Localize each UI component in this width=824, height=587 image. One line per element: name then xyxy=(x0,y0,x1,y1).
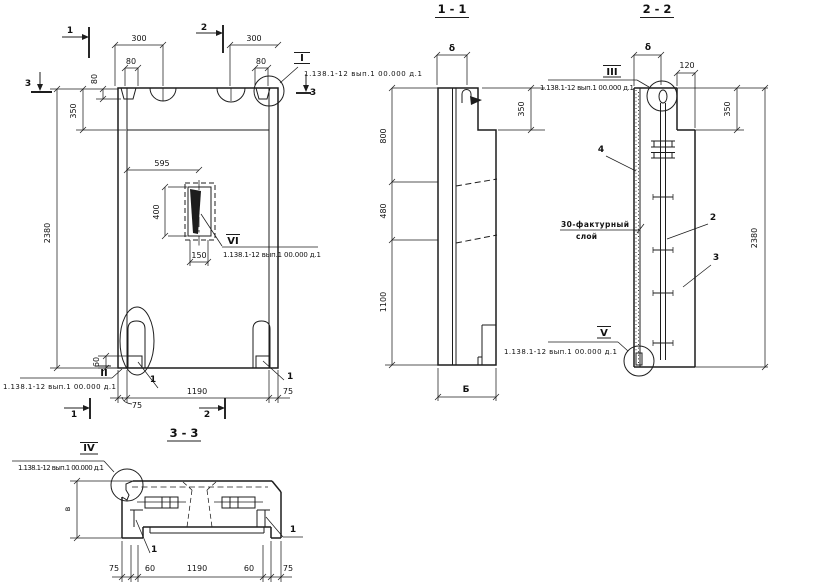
texture-note-line2: слой xyxy=(576,232,597,241)
dim-595: 595 xyxy=(154,159,169,168)
dim-60-corner: 60 xyxy=(92,357,101,367)
cut-mark-3-right: 3 xyxy=(310,88,316,98)
section-2-2: 2 - 2 xyxy=(504,2,768,376)
item-1-33-left: 1 xyxy=(151,545,157,555)
item-3-label: 3 xyxy=(713,253,719,263)
dim-300-left: 300 xyxy=(131,34,146,43)
drawing-page: 300 300 80 80 80 350 2380 595 400 150 60… xyxy=(0,0,824,587)
dim-350-side: 350 xyxy=(69,103,78,118)
dim-800: 800 xyxy=(379,128,388,143)
dim-1190-bottom: 1190 xyxy=(187,387,207,396)
section-3-3-outline xyxy=(111,469,281,538)
drawing-canvas: 300 300 80 80 80 350 2380 595 400 150 60… xyxy=(0,0,824,587)
dim-400: 400 xyxy=(152,204,161,219)
section-1-1-title: 1 - 1 xyxy=(438,2,467,16)
item-1-right: 1 xyxy=(287,372,293,382)
section-1-1-outline xyxy=(438,88,497,365)
main-view: 300 300 80 80 80 350 2380 595 400 150 60… xyxy=(3,23,422,420)
section-2-2-leaders xyxy=(548,66,711,352)
dim-150: 150 xyxy=(191,251,206,260)
cut-mark-2-bottom: 2 xyxy=(204,410,210,420)
detail-circle-iv xyxy=(111,469,143,501)
detail-label-iii: III xyxy=(606,67,617,78)
detail-label-vi: VI xyxy=(227,236,238,247)
dim-2380-side: 2380 xyxy=(43,223,52,243)
detail-label-ii: II xyxy=(100,368,107,379)
section-1-1: 1 - 1 xyxy=(379,2,545,401)
dim-350-1-1: 350 xyxy=(517,101,526,116)
main-bottom-slots xyxy=(120,76,284,375)
cut-mark-2-top: 2 xyxy=(201,23,207,33)
series-note-iv: 1.138.1-12 вып.1 00.000 д.1 xyxy=(18,464,104,472)
series-note-iii: 1.138.1-12 вып.1 00.000 д.1 xyxy=(540,84,634,92)
cut-mark-3-left: 3 xyxy=(25,79,31,89)
cut-mark-1-bottom: 1 xyxy=(71,410,77,420)
dim-300-right: 300 xyxy=(246,34,261,43)
detail-ellipse-ii xyxy=(120,307,154,375)
dim-80-side: 80 xyxy=(90,74,99,84)
dim-delta-1-1: δ xyxy=(449,44,455,54)
detail-circle-iii xyxy=(647,81,677,111)
series-note-v: 1.138.1-12 вып.1 00.000 д.1 xyxy=(504,348,617,356)
dim-75-bottom-right: 75 xyxy=(283,387,293,396)
dim-75-33-right: 75 xyxy=(283,564,293,573)
dim-75-33-left: 75 xyxy=(109,564,119,573)
section-3-3-leaders xyxy=(12,443,303,554)
main-leaders xyxy=(20,53,318,389)
dim-480: 480 xyxy=(379,203,388,218)
main-dimensions xyxy=(50,42,290,404)
cut-mark-1-top: 1 xyxy=(67,26,73,36)
dim-delta-2-2: δ xyxy=(645,43,651,53)
dim-2380-2-2: 2380 xyxy=(750,228,759,248)
texture-note-line1: 30-фактурный xyxy=(561,220,629,229)
detail-label-v: V xyxy=(600,328,608,339)
section-3-3: 3 - 3 xyxy=(12,426,303,582)
item-1-33-right: 1 xyxy=(290,525,296,535)
section-3-3-title: 3 - 3 xyxy=(170,426,199,440)
dim-80-top-left: 80 xyxy=(126,57,136,66)
dim-b-width: Б xyxy=(463,385,470,395)
series-note-i: 1.138.1-12 вып.1 00.000 д.1 xyxy=(304,70,422,78)
detail-label-iv: IV xyxy=(83,443,95,454)
item-4-label: 4 xyxy=(598,145,604,155)
dim-80-top-right: 80 xyxy=(256,57,266,66)
dim-1190-33: 1190 xyxy=(187,564,207,573)
section-3-3-dimensions xyxy=(70,478,292,582)
dim-75-bottom-left: 75 xyxy=(132,401,142,410)
dim-1100: 1100 xyxy=(379,292,388,312)
item-2-label: 2 xyxy=(710,213,716,223)
section-2-2-dimensions xyxy=(631,52,768,370)
section-2-2-title: 2 - 2 xyxy=(643,2,672,16)
detail-circle-v xyxy=(624,346,654,376)
dim-350-2-2: 350 xyxy=(723,101,732,116)
series-note-vi: 1.138.1-12 вып.1 00.000 д.1 xyxy=(223,251,321,259)
dim-60-33-left: 60 xyxy=(145,564,155,573)
detail-label-i: I xyxy=(300,53,304,64)
item-1-left: 1 xyxy=(150,375,156,385)
series-note-ii: 1.138.1-12 вып.1 00.000 д.1 xyxy=(3,383,116,391)
dim-120: 120 xyxy=(679,61,694,70)
dim-60-33-right: 60 xyxy=(244,564,254,573)
dim-v-height: в xyxy=(63,506,72,511)
main-opening xyxy=(185,180,215,247)
